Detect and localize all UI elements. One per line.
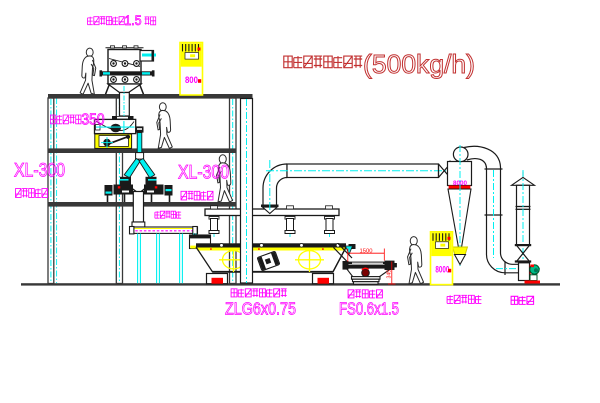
svg-text:XL-300: XL-300 (178, 162, 229, 184)
svg-text:(500kg/h): (500kg/h) (363, 49, 475, 79)
svg-text:1.5: 1.5 (125, 13, 142, 28)
svg-text:FS0.6x1.5: FS0.6x1.5 (339, 299, 399, 319)
svg-text:800: 800 (185, 75, 198, 86)
svg-text:350: 350 (82, 111, 105, 128)
svg-text:1500: 1500 (360, 248, 373, 254)
svg-text:345: 345 (386, 270, 392, 279)
svg-text:8000: 8000 (435, 264, 449, 275)
svg-text:ZLG6x0.75: ZLG6x0.75 (225, 299, 296, 319)
svg-text:XL-300: XL-300 (14, 160, 65, 182)
